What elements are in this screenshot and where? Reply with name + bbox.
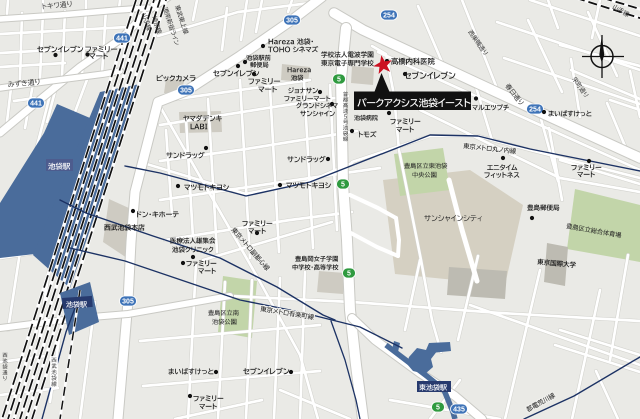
- svg-text:441: 441: [116, 36, 128, 43]
- svg-text:254: 254: [529, 107, 541, 114]
- svg-text:5: 5: [347, 271, 351, 278]
- svg-text:305: 305: [180, 88, 192, 95]
- svg-text:5: 5: [436, 405, 440, 412]
- svg-text:5: 5: [341, 182, 345, 189]
- svg-text:441: 441: [30, 101, 42, 108]
- svg-text:254: 254: [383, 13, 395, 20]
- svg-text:305: 305: [286, 18, 298, 25]
- svg-text:5: 5: [337, 77, 341, 84]
- svg-text:435: 435: [453, 407, 465, 414]
- svg-text:305: 305: [122, 299, 134, 306]
